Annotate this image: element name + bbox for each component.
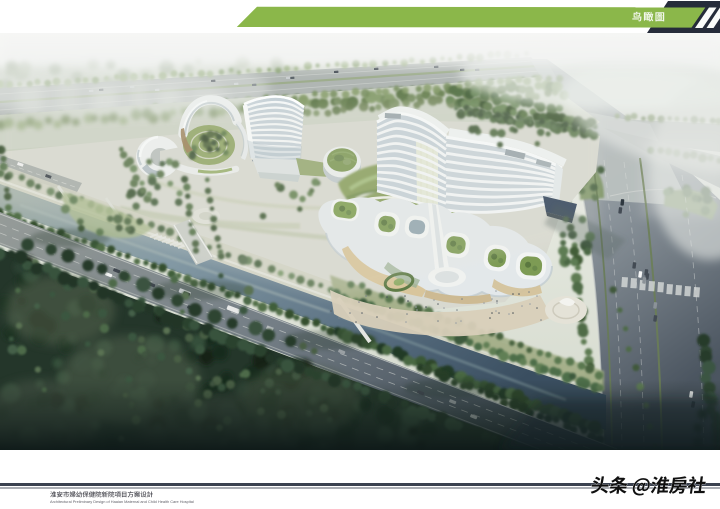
- svg-text:Architectural Preliminary Desi: Architectural Preliminary Design of Haai…: [50, 499, 194, 504]
